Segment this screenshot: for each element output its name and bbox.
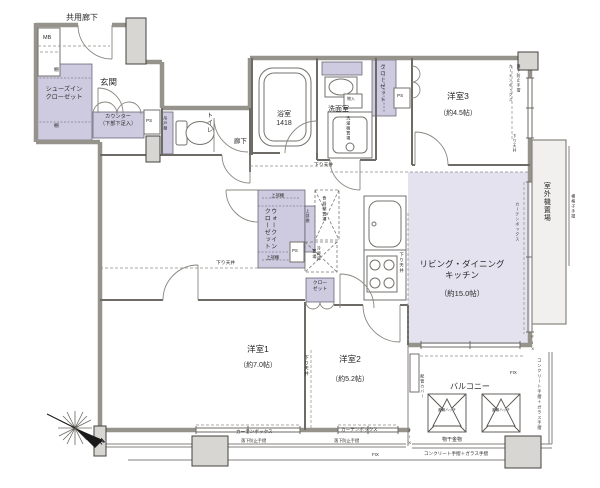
bedroom3-name: 洋室3 bbox=[428, 91, 488, 101]
bedroom3-size: （約4.5帖） bbox=[423, 110, 493, 118]
small-storage-label: 物入 bbox=[347, 97, 355, 102]
ps-label-kitchen: PS bbox=[292, 248, 298, 253]
curtain-box-label-east3: カーテンボックス bbox=[509, 64, 513, 102]
curtain-box-label-bed1: カーテンボックス bbox=[236, 429, 273, 435]
pipe-cover-icon bbox=[410, 354, 419, 392]
upper-shelf-label-top: 上部棚 bbox=[271, 193, 284, 198]
curtain-box-label-ldk-east: カーテンボックス bbox=[515, 202, 519, 242]
upper-shelf-label-side: 上部棚 bbox=[306, 209, 310, 223]
toilet-label: トイレ bbox=[205, 112, 212, 134]
dropped-ceiling-label-hall: 下り天井 bbox=[216, 261, 235, 267]
dropped-ceiling-label-kitchen: 下り天井 bbox=[399, 252, 404, 274]
evacuation-hatch-label-2: 避難ハッチ bbox=[482, 408, 520, 412]
drying-fixture-label: 物干金物 bbox=[442, 437, 462, 443]
fix-label-balcony-top: FIX bbox=[510, 370, 517, 375]
curtain-box-label-bed2: カーテンボックス bbox=[341, 427, 378, 433]
concrete-rail-label-bottom: コンクリート手摺＋ガラス手摺 bbox=[394, 451, 518, 457]
shoes-closet-label: シューズイン クローゼット bbox=[36, 86, 92, 103]
shelf-label-top: 棚 bbox=[54, 68, 59, 74]
bedroom1-name: 洋室1 bbox=[228, 344, 288, 354]
upper-shelf-label-bottom: 上部棚 bbox=[266, 255, 279, 260]
fall-rail-label-bed1: 落下防止手摺 bbox=[241, 438, 266, 443]
bedroom1-size: （約7.0帖） bbox=[223, 362, 293, 370]
ps-label-entrance: PS bbox=[146, 118, 152, 124]
closet-label-hall: クローゼット bbox=[378, 64, 384, 103]
hallway-label: 廊下 bbox=[234, 138, 247, 146]
floorplan: 共用廊下 MB 玄関 シューズイン クローゼット 棚 棚 カウンター （下部下足… bbox=[0, 0, 600, 488]
common-corridor-label: 共用廊下 bbox=[66, 13, 98, 23]
fix-label-bottom: FIX bbox=[372, 452, 379, 457]
fix-label-east: FIX bbox=[530, 334, 534, 352]
dropped-ceiling-label-bedrooms: 下り天井 bbox=[304, 355, 309, 377]
bathroom-label: 浴室 1418 bbox=[258, 110, 310, 129]
dish-cabinet-label: 食器棚置場 bbox=[322, 196, 326, 222]
mb-label: MB bbox=[43, 35, 51, 42]
ldk-floor-shade bbox=[408, 172, 530, 344]
outdoor-unit-area bbox=[532, 140, 566, 324]
concrete-rail-label-east: コンクリート手摺＋ガラス手摺 bbox=[537, 358, 541, 431]
shelf-label-bottom: 棚 bbox=[54, 124, 59, 130]
hanging-shelf-label: 吊戸棚 bbox=[163, 116, 167, 131]
fixtures bbox=[38, 28, 419, 392]
bedroom2-size: （約5.2帖） bbox=[315, 376, 385, 384]
ldk-size: （約15.0帖） bbox=[412, 289, 512, 298]
fix-label-balcony-left: FIX bbox=[407, 428, 411, 446]
bedroom2-name: 洋室2 bbox=[320, 354, 380, 364]
walk-in-closet-label: ウォークイン クローゼット bbox=[263, 208, 276, 250]
evacuation-hatch-icons bbox=[428, 394, 520, 432]
ps-label-closet: PS bbox=[397, 93, 403, 99]
pipe-cover-label: 配管カバー bbox=[420, 374, 424, 399]
dropped-ceiling-label-wash: 下り天井 bbox=[314, 163, 333, 169]
closet-label-bedroom2: クロー ゼット bbox=[306, 281, 334, 293]
ldk-name: リビング・ダイニング キッチン bbox=[412, 259, 512, 282]
outdoor-unit-label: 室外機置場 bbox=[543, 182, 550, 222]
counter-label: カウンター （下部下足入） bbox=[90, 114, 146, 128]
stove-icon bbox=[367, 256, 397, 292]
balcony-label: バルコニー bbox=[450, 382, 490, 392]
washroom-label: 洗面室 bbox=[328, 106, 349, 114]
evacuation-hatch-label-1: 避難ハッチ bbox=[428, 408, 466, 412]
dropped-ceiling-label-east: 下り天井 bbox=[513, 134, 517, 153]
washer-space-label: 洗濯機置場 bbox=[346, 116, 350, 141]
fall-rail-label-east3: 落下防止手摺 bbox=[517, 64, 521, 93]
fridge-space-label: 冷蔵庫 置場 bbox=[312, 246, 321, 262]
lattice-rail-label: 横格子手摺 bbox=[571, 194, 575, 219]
entrance-label: 玄関 bbox=[100, 77, 117, 87]
bathtub-icon bbox=[259, 68, 311, 146]
fall-rail-label-bed2: 落下防止手摺 bbox=[334, 438, 359, 443]
